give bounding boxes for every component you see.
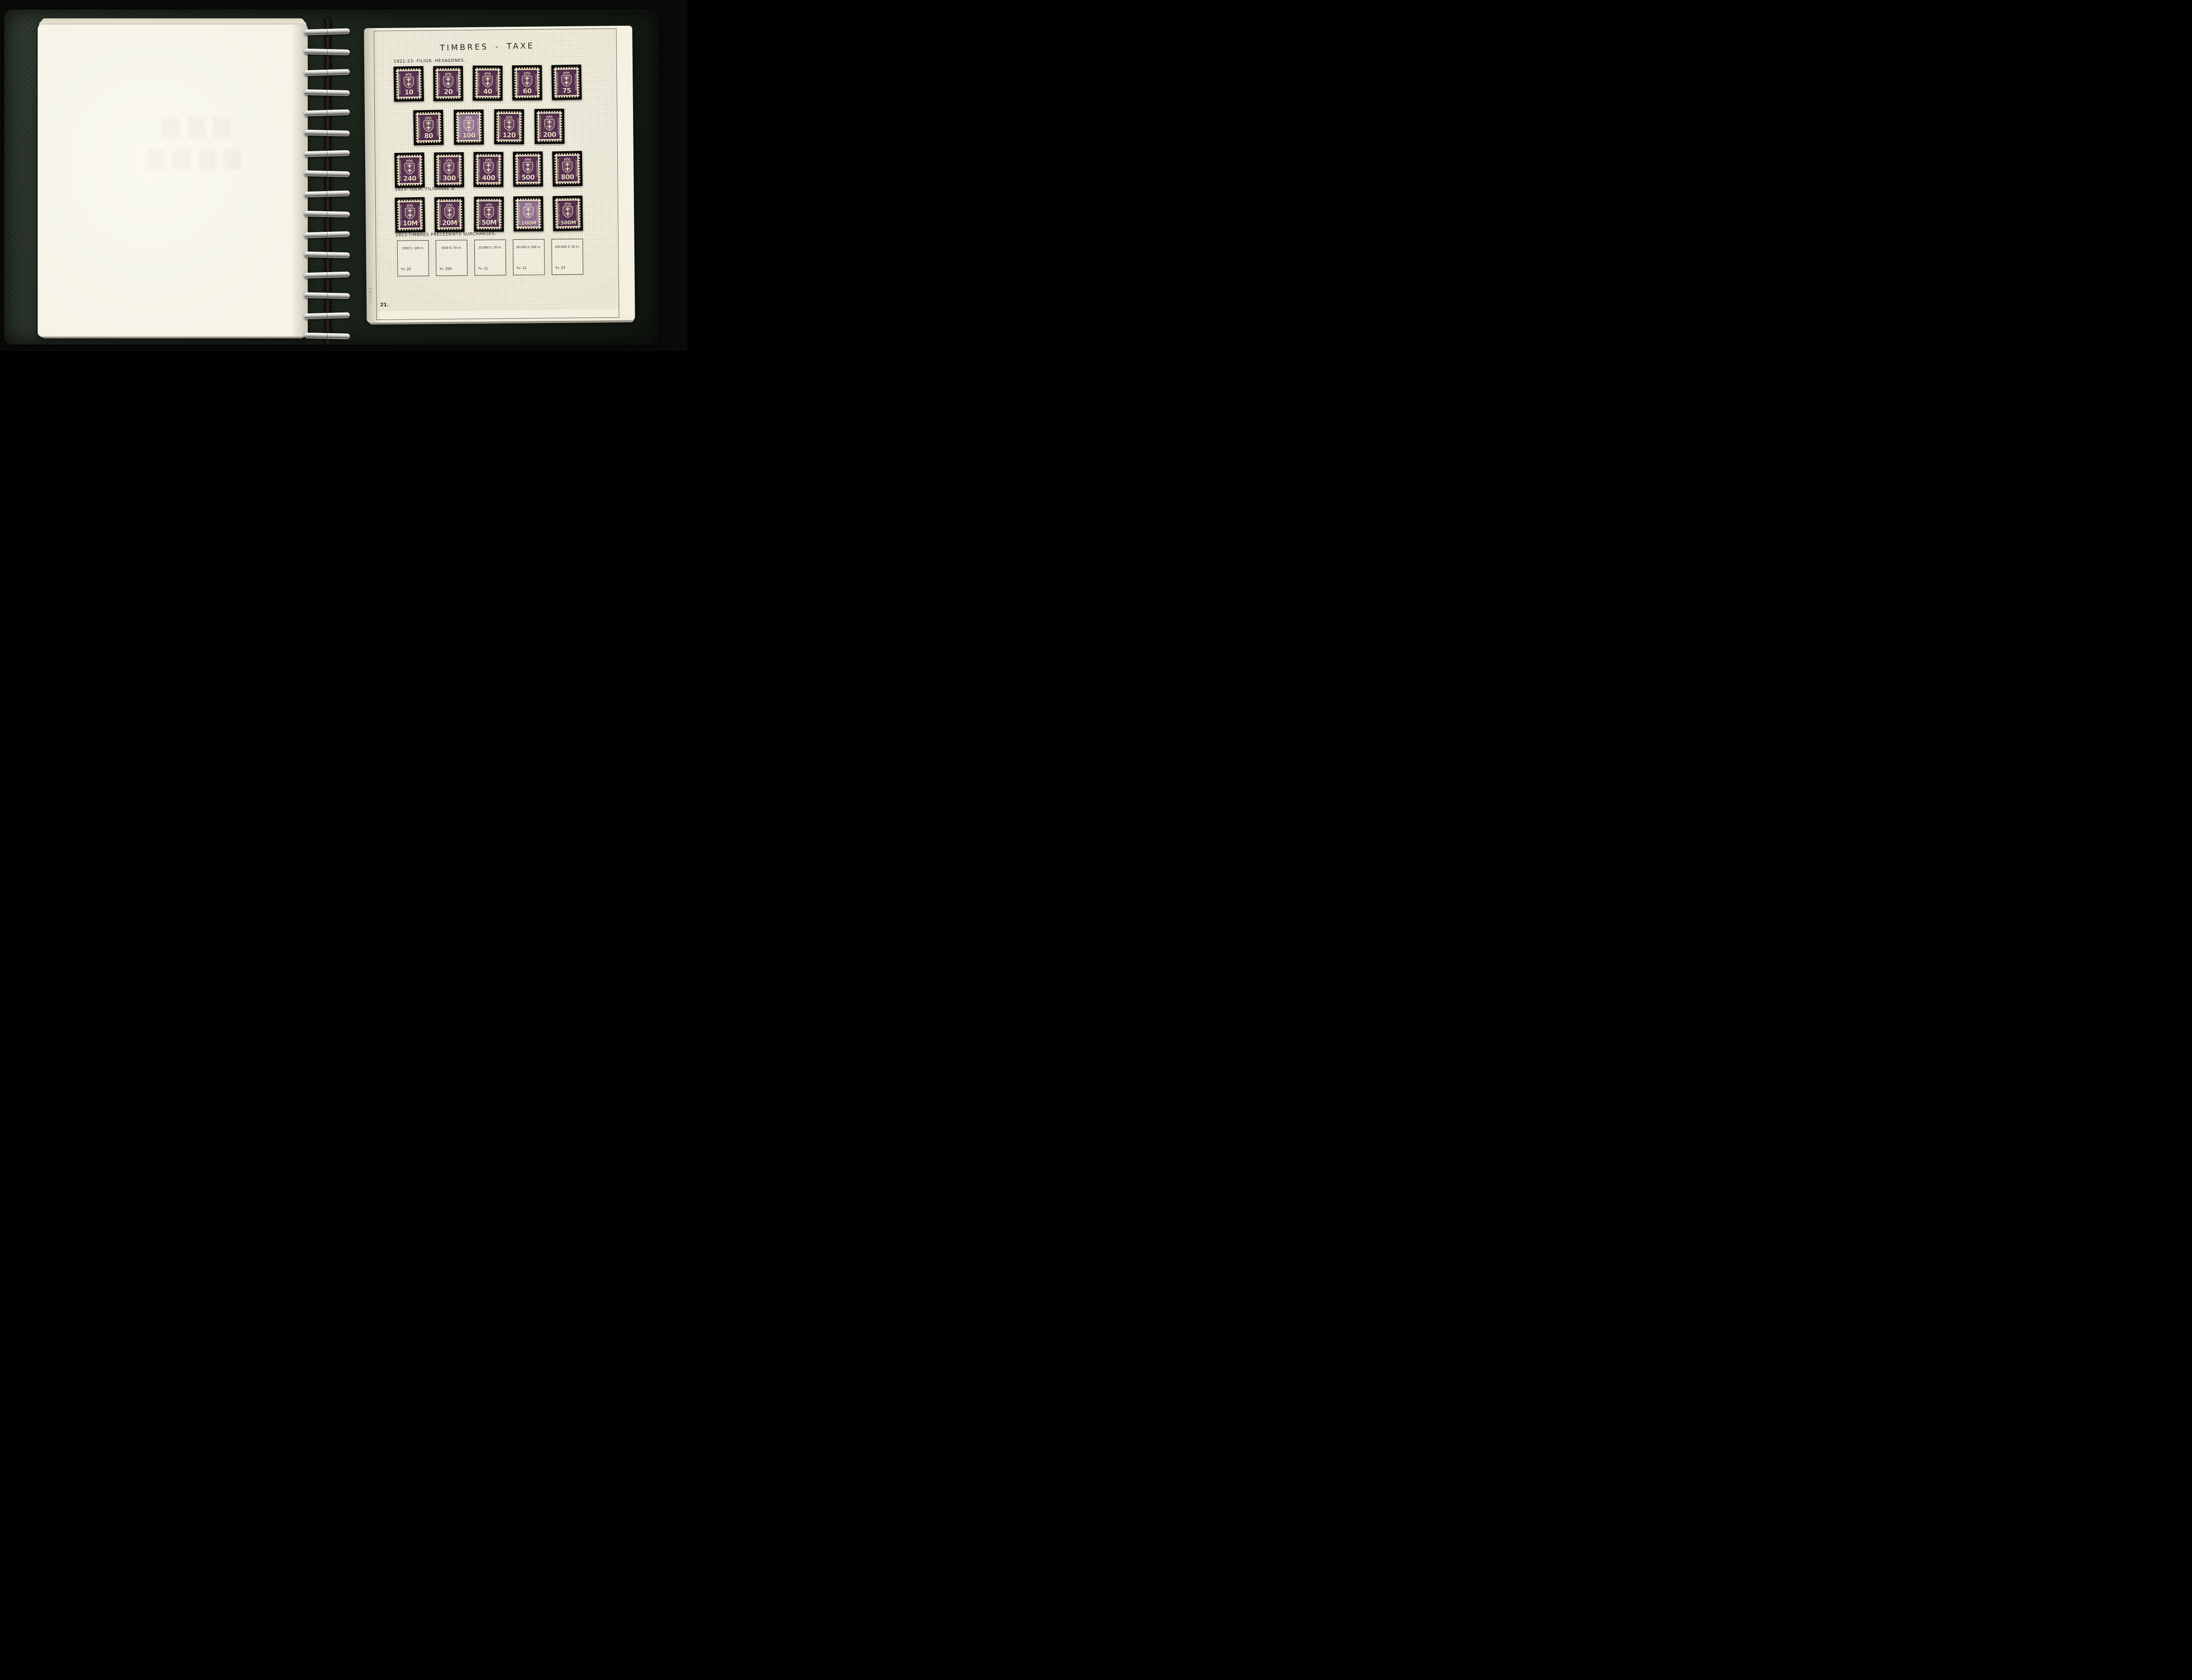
binder-ring [304, 110, 350, 117]
binder-ring [304, 211, 350, 217]
binder-ring [304, 28, 350, 36]
binder-ring [304, 130, 350, 136]
binder-ring [304, 252, 350, 258]
binder-ring [304, 150, 350, 157]
binder-ring [304, 292, 350, 298]
binder-ring [304, 231, 350, 238]
binder-ring [304, 272, 350, 279]
binder-ring [304, 170, 350, 177]
binder-ring [304, 191, 350, 198]
binder-ring [304, 89, 350, 96]
binder-ring [304, 312, 350, 319]
photo-stamp-album: TIMBRES - TAXE 1921-23- FILIGR. HEXAGONE… [0, 0, 687, 351]
binder-ring [304, 49, 350, 55]
binder-ring [304, 333, 350, 339]
binder-ring [304, 69, 350, 76]
binder-rings [0, 0, 687, 351]
